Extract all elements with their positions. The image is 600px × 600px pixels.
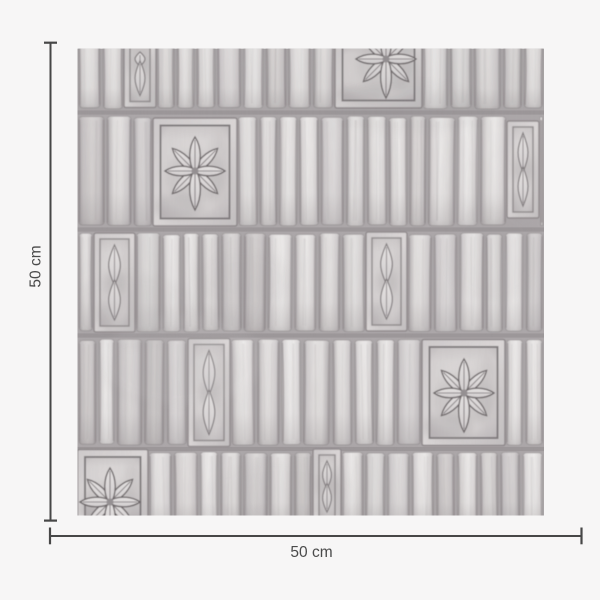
- svg-text:50 cm: 50 cm: [290, 544, 332, 561]
- svg-text:50 cm: 50 cm: [28, 245, 45, 287]
